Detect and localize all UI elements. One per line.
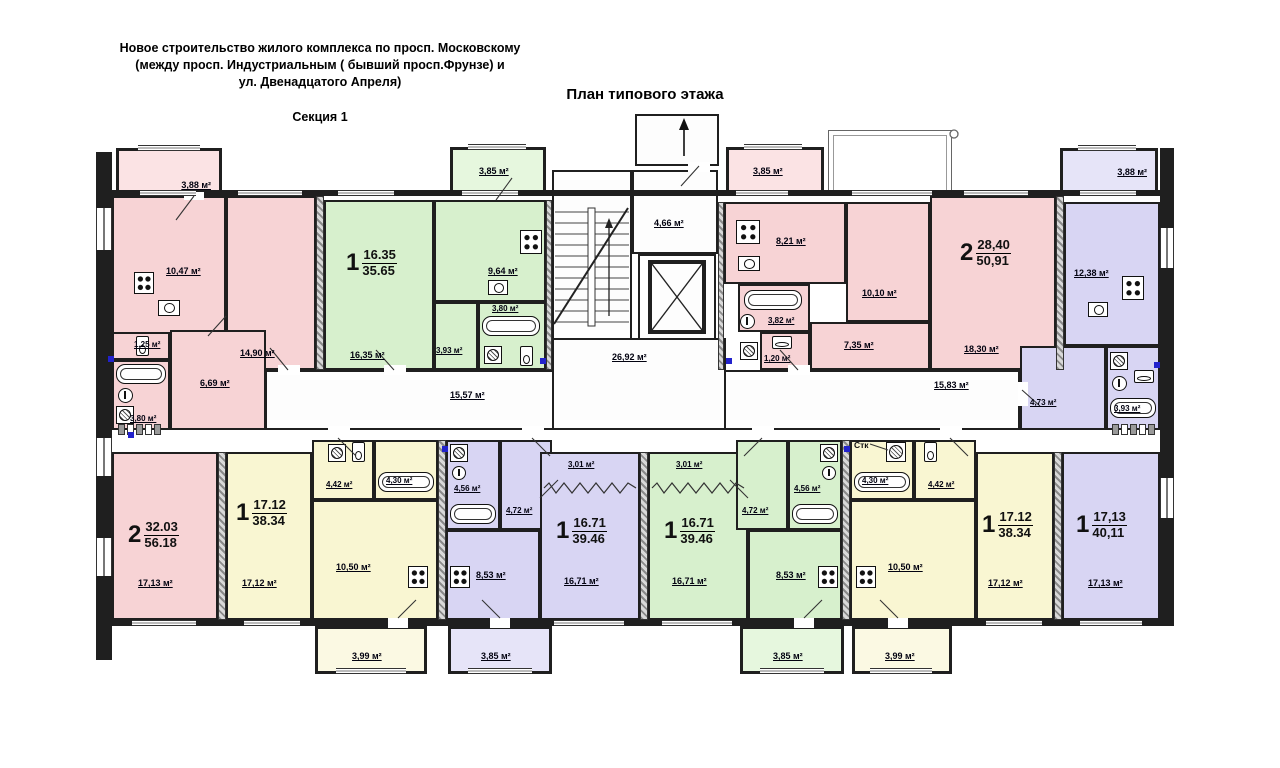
door-opening (1018, 382, 1028, 406)
window (96, 438, 112, 476)
area-label: 8,21 м² (776, 236, 806, 246)
total-area: 38.34 (252, 514, 287, 529)
washer-note: Стк (854, 440, 869, 450)
boiler-icon (822, 466, 836, 480)
area-label: 3,93 м² (1114, 404, 1140, 413)
area-label: 3,99 м² (885, 651, 915, 661)
bathtub-icon (116, 364, 166, 384)
stove-icon (134, 272, 154, 294)
toilet-icon (352, 442, 365, 462)
area-label: 18,30 м² (964, 344, 999, 354)
open-balcony-outline (828, 130, 952, 196)
room-balcony: 3,99 м² (852, 626, 952, 674)
right-exterior-wall (1160, 148, 1174, 626)
rooms-count: 1 (346, 251, 359, 275)
area-label: 4,56 м² (794, 484, 820, 493)
area-label: 3,82 м² (768, 316, 794, 325)
room-balcony: 3,99 м² (315, 626, 427, 674)
area-label: 4,30 м² (862, 476, 888, 485)
area-label: 17,13 м² (138, 578, 173, 588)
area-label: 12,38 м² (1074, 268, 1109, 278)
toilet-icon (924, 442, 937, 462)
area-label: 14,90 м² (240, 348, 275, 358)
stove-icon (520, 230, 542, 254)
window (964, 190, 1028, 196)
door-opening (278, 365, 300, 375)
bathtub-icon (744, 290, 802, 310)
area-label: 16,71 м² (564, 576, 599, 586)
toilet-icon (1134, 370, 1154, 383)
bathtub-icon (792, 504, 838, 524)
window (138, 145, 200, 151)
area-label: 26,92 м² (612, 352, 647, 362)
window (986, 620, 1042, 626)
area-label: 10,10 м² (862, 288, 897, 298)
title-line-1: Новое строительство жилого комплекса по … (95, 40, 545, 57)
living-area: 28,40 (976, 238, 1011, 254)
living-area: 17,13 (1092, 510, 1127, 526)
apartment-label: 1 16.3535.65 (346, 248, 397, 279)
stove-icon (818, 566, 838, 588)
window (96, 538, 112, 576)
area-label: 4,42 м² (928, 480, 954, 489)
living-area: 16.35 (362, 248, 397, 264)
washing-machine-icon (886, 442, 906, 462)
rooms-count: 1 (1076, 513, 1089, 537)
window (870, 668, 932, 674)
window (662, 620, 732, 626)
floor-plan-drawing: Новое строительство жилого комплекса по … (0, 0, 1280, 768)
area-label: 4,42 м² (326, 480, 352, 489)
vent-blocks (118, 424, 161, 435)
room-balcony: 3,85 м² (448, 626, 552, 674)
sink-icon (488, 280, 508, 295)
living-area: 16.71 (572, 516, 607, 532)
stove-icon (1122, 276, 1144, 300)
room-balcony: 3,85 м² (726, 147, 824, 196)
living-area: 16.71 (680, 516, 715, 532)
area-label: 4,73 м² (1030, 398, 1056, 407)
sink-icon (738, 256, 760, 271)
window (554, 620, 624, 626)
window (736, 190, 788, 196)
boiler-icon (1112, 376, 1127, 391)
area-label: 10,50 м² (336, 562, 371, 572)
apartment-label: 1 17.1238.34 (982, 510, 1033, 541)
door-opening (940, 426, 962, 438)
window (140, 190, 196, 196)
area-label: 3,88 м² (1117, 167, 1147, 177)
room-balcony: 3,88 м² (1060, 148, 1158, 196)
washing-machine-icon (1110, 352, 1128, 370)
window (338, 190, 394, 196)
area-label: 3,88 м² (181, 180, 211, 190)
party-wall (842, 440, 850, 620)
door-opening (328, 426, 350, 438)
plan-title: План типового этажа (555, 86, 735, 103)
room-kitchen (312, 500, 438, 620)
washing-machine-icon (484, 346, 502, 364)
area-label: 3,80 м² (492, 304, 518, 313)
total-area: 38.34 (998, 526, 1033, 541)
toilet-icon (772, 336, 792, 349)
door-opening (522, 426, 544, 438)
washing-machine-icon (328, 444, 346, 462)
washing-machine-icon (820, 444, 838, 462)
socket-marker (442, 446, 448, 452)
socket-marker (844, 446, 850, 452)
area-label: 16,35 м² (350, 350, 385, 360)
party-wall (218, 452, 226, 620)
entrance-vestibule (635, 114, 719, 166)
area-label: 16,71 м² (672, 576, 707, 586)
area-label: 4,72 м² (506, 506, 532, 515)
living-area: 32.03 (144, 520, 179, 536)
window (468, 144, 526, 150)
total-area: 39.46 (680, 532, 715, 547)
socket-marker (726, 358, 732, 364)
bathtub-icon (450, 504, 496, 524)
door-opening (688, 162, 710, 172)
room-balcony: 3,85 м² (450, 147, 546, 196)
title-line-3: ул. Двенадцатого Апреля) (95, 74, 545, 91)
window (462, 190, 518, 196)
area-label: 4,66 м² (654, 218, 684, 228)
area-label: 10,47 м² (166, 266, 201, 276)
door-opening (788, 365, 810, 375)
rooms-count: 2 (128, 523, 141, 547)
room-bedroom (846, 202, 930, 322)
boiler-icon (740, 314, 755, 329)
corridor-right (724, 370, 1020, 430)
window (852, 190, 932, 196)
area-label: 9,64 м² (488, 266, 518, 276)
area-label: 3,85 м² (479, 166, 509, 176)
area-label: 1,20 м² (764, 354, 790, 363)
window (132, 620, 196, 626)
boiler-icon (118, 388, 133, 403)
socket-marker (128, 432, 134, 438)
window (744, 144, 802, 150)
window (1078, 145, 1136, 151)
stove-icon (450, 566, 470, 588)
area-label: 3,93 м² (436, 346, 462, 355)
apartment-label: 1 16.7139.46 (664, 516, 715, 547)
party-wall (316, 196, 324, 370)
living-area: 17.12 (998, 510, 1033, 526)
room-living (324, 200, 434, 370)
window (1160, 478, 1174, 518)
washing-machine-icon (450, 444, 468, 462)
total-area: 50,91 (976, 254, 1011, 269)
rooms-count: 2 (960, 241, 973, 265)
living-area: 17.12 (252, 498, 287, 514)
room-balcony: 3,85 м² (740, 626, 844, 674)
apartment-label: 1 16.7139.46 (556, 516, 607, 547)
socket-marker (1154, 362, 1160, 368)
area-label: 15,57 м² (450, 390, 485, 400)
area-label: 17,13 м² (1088, 578, 1123, 588)
area-label: 3,99 м² (352, 651, 382, 661)
party-wall (1054, 452, 1062, 620)
area-label: 8,53 м² (476, 570, 506, 580)
window (238, 190, 302, 196)
area-label: 3,01 м² (676, 460, 702, 469)
window (1080, 190, 1136, 196)
door-opening (490, 618, 510, 628)
party-wall (438, 440, 446, 620)
area-label: 3,85 м² (753, 166, 783, 176)
room-balcony: 3,88 м² (116, 148, 222, 196)
socket-marker (108, 356, 114, 362)
area-label: 7,35 м² (844, 340, 874, 350)
total-area: 56.18 (144, 536, 179, 551)
area-label: 3,80 м² (130, 414, 156, 423)
core-wall (546, 200, 552, 370)
corridor-left (265, 370, 554, 430)
total-area: 40,11 (1092, 526, 1127, 541)
door-opening (752, 426, 774, 438)
rooms-count: 1 (556, 519, 569, 543)
window (96, 208, 112, 250)
door-opening (888, 618, 908, 628)
area-label: 15,83 м² (934, 380, 969, 390)
sink-icon (1088, 302, 1108, 317)
total-area: 35.65 (362, 264, 397, 279)
boiler-icon (452, 466, 466, 480)
apartment-label: 2 32.0356.18 (128, 520, 179, 551)
room-living (226, 452, 312, 620)
core-wall (718, 202, 724, 370)
apartment-label: 2 28,4050,91 (960, 238, 1011, 269)
socket-marker (540, 358, 546, 364)
area-label: 3,85 м² (481, 651, 511, 661)
room-hall (434, 302, 478, 370)
area-label: 1,25 м² (134, 340, 160, 349)
area-label: 3,01 м² (568, 460, 594, 469)
area-label: 10,50 м² (888, 562, 923, 572)
door-opening (794, 618, 814, 628)
window (1080, 620, 1142, 626)
area-label: 4,72 м² (742, 506, 768, 515)
area-label: 6,69 м² (200, 378, 230, 388)
room-hall (736, 440, 788, 530)
rooms-count: 1 (982, 513, 995, 537)
party-wall (1056, 196, 1064, 370)
stove-icon (856, 566, 876, 588)
elevator-shaft (648, 260, 706, 334)
rooms-count: 1 (664, 519, 677, 543)
window (468, 668, 532, 674)
area-label: 8,53 м² (776, 570, 806, 580)
area-label: 17,12 м² (242, 578, 277, 588)
window (760, 668, 824, 674)
apartment-label: 1 17,1340,11 (1076, 510, 1127, 541)
total-area: 39.46 (572, 532, 607, 547)
toilet-icon (520, 346, 533, 366)
stove-icon (408, 566, 428, 588)
window (336, 668, 406, 674)
area-label: 17,12 м² (988, 578, 1023, 588)
vent-blocks (1112, 424, 1155, 435)
window (1160, 228, 1174, 268)
window (244, 620, 300, 626)
door-opening (384, 365, 406, 375)
plan-area: 3,88 м² 10,47 м² 14,90 м² 6,69 м² 1,25 м… (88, 108, 1180, 708)
sink-icon (158, 300, 180, 316)
rooms-count: 1 (236, 501, 249, 525)
bathtub-icon (482, 316, 540, 336)
washing-machine-icon (740, 342, 758, 360)
drawing-title: Новое строительство жилого комплекса по … (95, 40, 545, 91)
title-line-2: (между просп. Индустриальным ( бывший пр… (95, 57, 545, 74)
room-kitchen (850, 500, 976, 620)
stove-icon (736, 220, 760, 244)
apartment-label: 1 17.1238.34 (236, 498, 287, 529)
area-label: 3,85 м² (773, 651, 803, 661)
area-label: 4,56 м² (454, 484, 480, 493)
party-wall (640, 452, 648, 620)
elevator-lobby (632, 170, 718, 254)
door-opening (388, 618, 408, 628)
area-label: 4,30 м² (386, 476, 412, 485)
